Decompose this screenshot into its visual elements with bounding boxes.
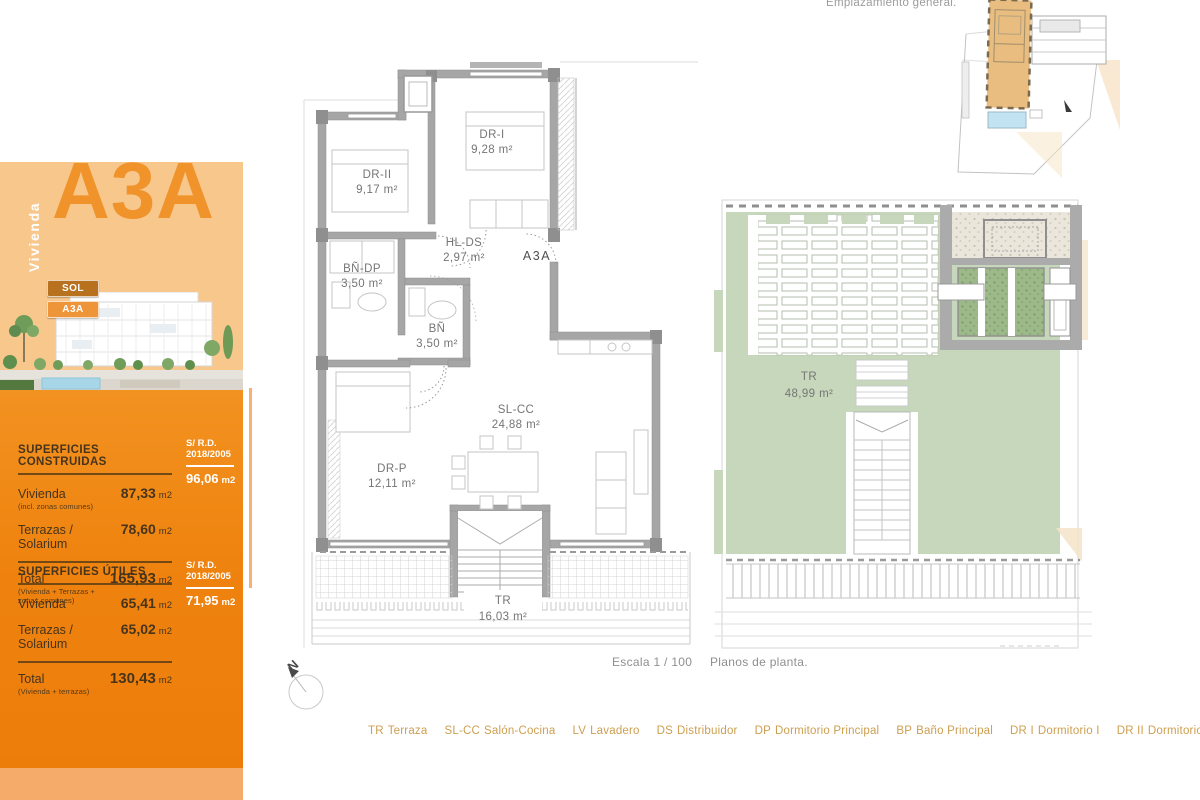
- north-arrow: N: [280, 656, 326, 714]
- pergola: [748, 215, 938, 355]
- legend-item: BPBaño Principal: [896, 725, 993, 737]
- sidebar-edge-stripe: [249, 388, 252, 588]
- table-row: Vivienda 65,41m2: [18, 595, 172, 611]
- room-label: TR: [495, 595, 511, 607]
- legend-item: DR IIDormitorio II: [1117, 725, 1200, 737]
- room-label: DR-II: [363, 169, 392, 181]
- table-row-total: Total (Vivienda + terrazas) 130,43m2: [18, 661, 172, 696]
- highlighted-building: [987, 0, 1032, 109]
- room-label: BÑ-DP: [343, 262, 381, 275]
- legend-item: LVLavadero: [572, 725, 639, 737]
- svg-text:24,88 m²: 24,88 m²: [492, 419, 541, 431]
- table-alt-header: S/ R.D. 2018/2005: [186, 438, 234, 467]
- scale-label: Escala 1 / 100: [612, 655, 692, 669]
- site-plan: [938, 0, 1122, 190]
- svg-text:12,11 m²: 12,11 m²: [368, 478, 416, 490]
- vivienda-vertical-label: Vivienda: [26, 170, 42, 272]
- site-stairs: [962, 62, 969, 118]
- planter: [958, 268, 1044, 336]
- room-label: BÑ: [429, 322, 446, 335]
- north-label: N: [284, 657, 301, 674]
- stairs: [458, 511, 542, 597]
- room-label: HL-DS: [446, 237, 483, 249]
- table-row: Terrazas / Solarium 78,60m2: [18, 521, 172, 551]
- patio-area: [938, 205, 1082, 350]
- svg-text:TR: TR: [801, 371, 817, 383]
- room-label: DR-I: [479, 129, 504, 141]
- brochure-page: { "sidebar": { "vivienda_label": "Vivien…: [0, 0, 1200, 800]
- svg-text:3,50 m²: 3,50 m²: [416, 338, 458, 350]
- svg-text:2,97 m²: 2,97 m²: [443, 252, 485, 264]
- svg-text:9,28 m²: 9,28 m²: [471, 144, 513, 156]
- wardrobe-strip: [328, 420, 340, 538]
- roof-plan: TR 48,99 m²: [712, 192, 1094, 654]
- main-floor-plan: DR-II 9,17 m² DR-I 9,28 m² HL-DS 2,97 m²…: [288, 55, 698, 655]
- legend-item: DPDormitorio Principal: [755, 725, 880, 737]
- ground-and-pool: [0, 370, 243, 390]
- alt-value: 71,95m2: [186, 593, 235, 608]
- site-marker: [1064, 100, 1072, 112]
- svg-text:48,99 m²: 48,99 m²: [785, 388, 834, 400]
- side-balcony: [558, 78, 576, 230]
- pool: [42, 378, 100, 389]
- svg-text:9,17 m²: 9,17 m²: [356, 184, 398, 196]
- legend-item: SL-CCSalón-Cocina: [444, 725, 555, 737]
- svg-text:3,50 m²: 3,50 m²: [341, 278, 383, 290]
- site-pool: [988, 112, 1026, 128]
- ac-unit: [938, 284, 984, 300]
- unit-code-title: A3A: [52, 153, 215, 229]
- roof-stairs: [846, 360, 918, 554]
- neighbor-building: [1032, 16, 1106, 64]
- vent-shaft: [404, 76, 432, 112]
- room-label: SL-CC: [498, 404, 535, 416]
- alt-value: 96,06m2: [186, 471, 235, 486]
- legend-item: TRTerraza: [368, 725, 427, 737]
- ac-unit: [1044, 284, 1076, 300]
- legend-item: DR IDormitorio I: [1010, 725, 1100, 737]
- table-title: SUPERFICIES ÚTILES: [18, 566, 172, 585]
- sidebar-data-panel: SUPERFICIES CONSTRUIDAS S/ R.D. 2018/200…: [0, 390, 243, 768]
- building-illustration: [0, 292, 243, 390]
- unit-entry-label: A3A: [523, 249, 551, 263]
- svg-text:16,03 m²: 16,03 m²: [479, 611, 528, 623]
- badge-sol: SOL: [47, 280, 99, 297]
- table-superficies-utiles: SUPERFICIES ÚTILES S/ R.D. 2018/2005 71,…: [18, 566, 234, 696]
- table-title: SUPERFICIES CONSTRUIDAS: [18, 444, 172, 475]
- sidebar-footer-strip: [0, 768, 243, 800]
- table-alt-header: S/ R.D. 2018/2005: [186, 560, 234, 589]
- table-row: Terrazas / Solarium 65,02m2: [18, 621, 172, 651]
- table-row: Vivienda (incl. zonas comunes) 87,33m2: [18, 485, 172, 511]
- legend: TRTerraza SL-CCSalón-Cocina LVLavadero D…: [368, 725, 1158, 737]
- badge-unit: A3A: [47, 301, 99, 318]
- legend-item: DSDistribuidor: [657, 725, 738, 737]
- plans-caption: Planos de planta.: [710, 655, 808, 669]
- room-label: DR-P: [377, 463, 407, 475]
